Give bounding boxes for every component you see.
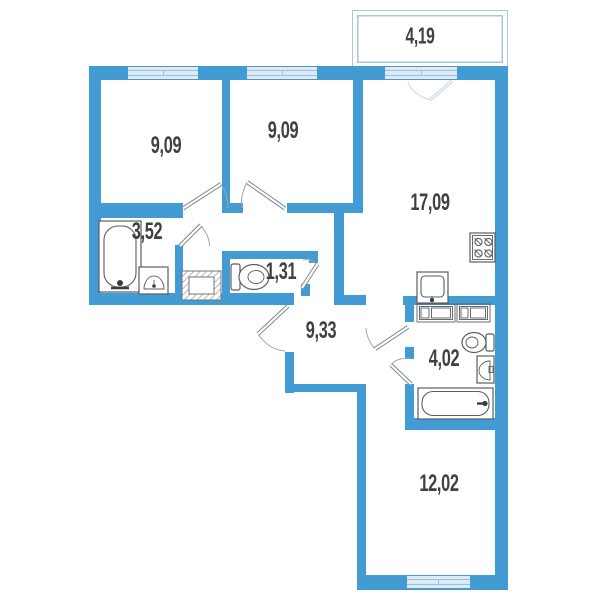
door-bathroom-2-icon: [391, 358, 411, 384]
window-room-3: [407, 576, 470, 588]
wall-niche-west-b: [405, 347, 414, 359]
door-bedroom-2-icon: [241, 182, 285, 209]
wall-hall-south: [285, 384, 366, 392]
wall-kitchen-west-lower: [334, 213, 344, 297]
room-area-label-kitchen-living: 17,09: [401, 191, 459, 215]
wall-wc-east-lower: [301, 284, 310, 296]
toilet-bathroom-2-icon: [462, 333, 494, 353]
wall-niche-west-a: [405, 296, 414, 322]
room-area-label-balcony: 4,19: [399, 25, 442, 48]
bathtub-horizontal-icon: [418, 388, 493, 419]
door-entrance-icon: [258, 306, 288, 351]
door-balcony-icon: [408, 81, 452, 100]
wall-corridor-west: [357, 392, 366, 583]
wall-bedrooms-south-c: [287, 203, 363, 213]
room-area-label-hallway: 9,33: [299, 319, 344, 343]
wall-right: [495, 66, 508, 590]
label-text-wc: 1,31: [266, 260, 296, 284]
door-bathroom-icon: [180, 225, 210, 246]
floor-plan: 4,19 9,09 9,09 17,09 3,52 1,31 9,33 4,02…: [0, 0, 600, 600]
window-balcony-door: [385, 67, 457, 79]
stove-4-burner-icon: [470, 233, 495, 262]
label-text-bathroom: 3,52: [132, 220, 162, 244]
window-bedroom-2: [247, 67, 317, 79]
door-niche-icon: [366, 327, 408, 349]
room-area-label-bathroom-2: 4,02: [422, 347, 467, 371]
label-text-bedroom-1: 9,09: [151, 134, 181, 158]
label-text-room-3: 12,02: [419, 472, 458, 496]
wall-room3-north: [405, 418, 495, 430]
wall-bathroom-east: [175, 245, 183, 305]
wall-bedrooms-south-b: [223, 203, 243, 213]
room-area-label-bathroom: 3,52: [125, 220, 170, 244]
sink-bathroom-icon: [139, 267, 168, 294]
label-text-bathroom-2: 4,02: [429, 347, 459, 371]
wall-bedrooms-south-a: [89, 203, 183, 218]
wall-wc-corner: [309, 251, 318, 263]
wall-bedroom-divider: [222, 80, 230, 213]
label-text-kitchen-living: 17,09: [410, 191, 449, 215]
room-area-label-wc: 1,31: [259, 260, 304, 284]
wall-wc-west: [222, 251, 230, 305]
label-text-balcony: 4,19: [405, 25, 434, 48]
wall-west-block-bottom: [89, 293, 294, 305]
cabinet-row-icon: [417, 304, 490, 322]
label-text-hallway: 9,33: [306, 319, 336, 343]
label-text-bedroom-2: 9,09: [268, 119, 298, 143]
wall-left: [89, 66, 101, 305]
room-area-label-bedroom-2: 9,09: [261, 119, 306, 143]
room-area-label-bedroom-1: 9,09: [144, 134, 189, 158]
wall-kitchen-south-b: [403, 296, 495, 305]
sink-bathroom-2-icon: [477, 356, 494, 383]
window-bedroom-1: [128, 67, 198, 79]
wall-kitchen-west-upper: [353, 80, 363, 213]
room-area-label-room-3: 12,02: [410, 472, 468, 496]
wall-kitchen-south-a: [334, 295, 366, 305]
